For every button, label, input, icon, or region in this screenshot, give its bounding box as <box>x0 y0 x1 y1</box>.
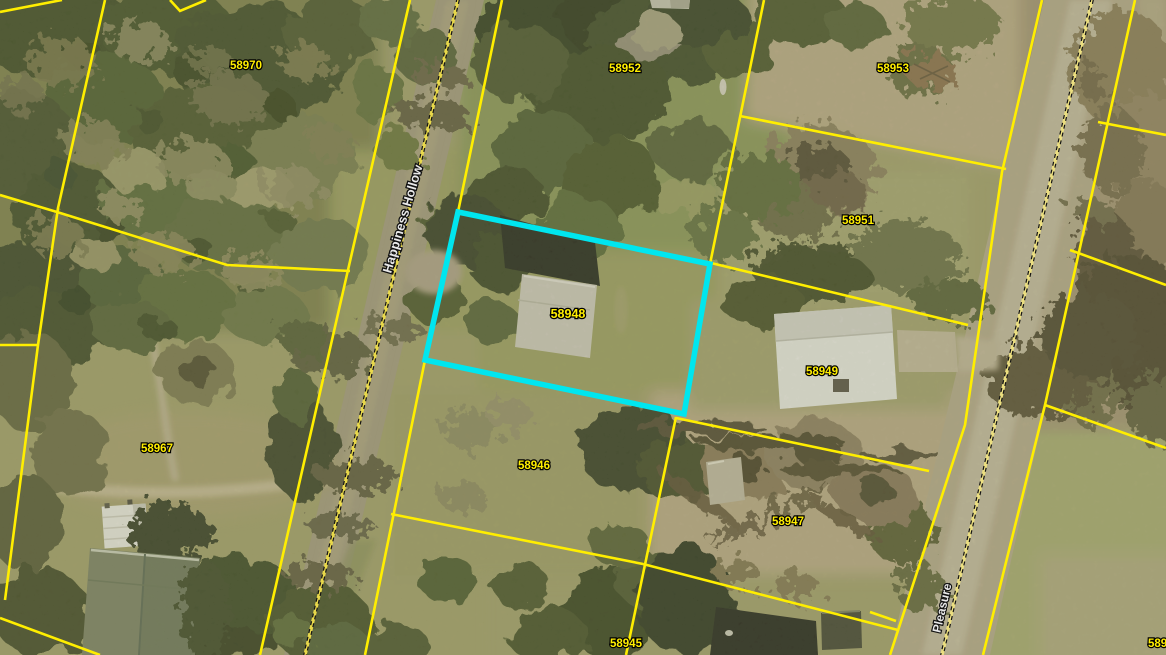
svg-text:58967: 58967 <box>141 443 173 455</box>
svg-text:58947: 58947 <box>772 516 804 528</box>
svg-text:58949: 58949 <box>806 366 838 378</box>
svg-text:5894: 5894 <box>1148 638 1166 650</box>
svg-text:58945: 58945 <box>610 638 643 650</box>
svg-text:58953: 58953 <box>877 63 909 75</box>
svg-text:58951: 58951 <box>842 215 875 227</box>
svg-text:58970: 58970 <box>230 60 262 72</box>
svg-text:58952: 58952 <box>609 63 641 75</box>
svg-text:58946: 58946 <box>518 460 550 472</box>
svg-text:58948: 58948 <box>551 307 586 321</box>
